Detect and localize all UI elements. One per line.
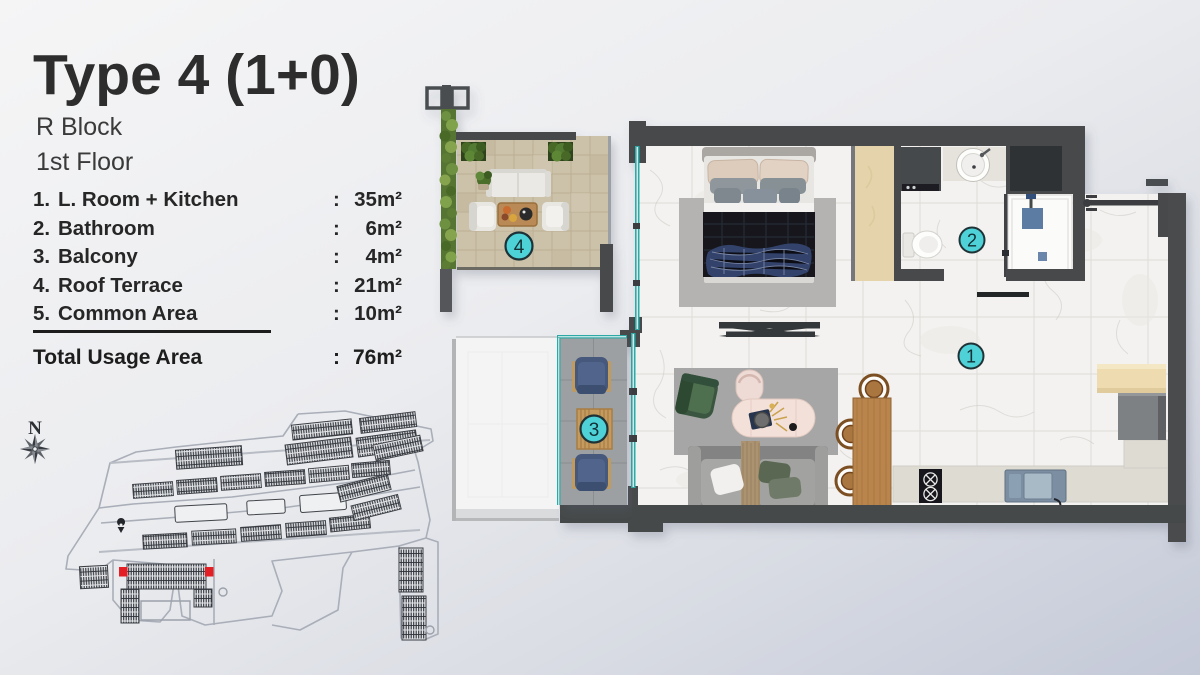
svg-text:1: 1 <box>966 347 976 367</box>
svg-text:2: 2 <box>967 231 977 251</box>
svg-text:4: 4 <box>514 237 525 258</box>
svg-text:3: 3 <box>589 420 600 441</box>
